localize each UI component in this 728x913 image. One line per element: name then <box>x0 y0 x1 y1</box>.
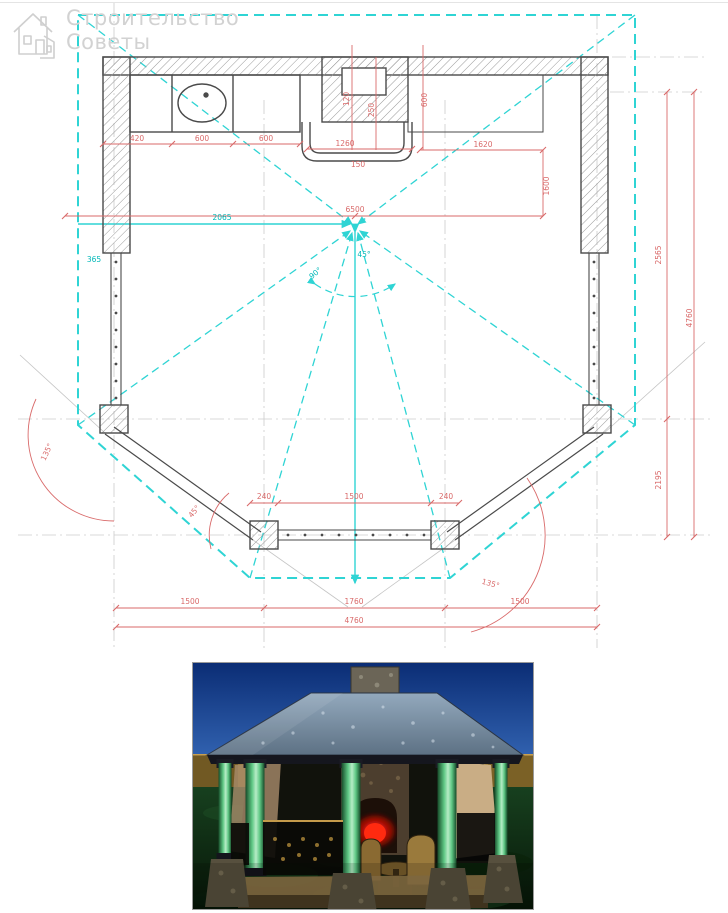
dimension-label: 600 <box>259 134 274 143</box>
gazebo-floor-plan: 4206006001260150162016001202506006500206… <box>0 0 728 656</box>
dimension-label: 600 <box>195 134 210 143</box>
dimension-label: 1260 <box>335 139 354 148</box>
baluster-dot <box>406 534 409 537</box>
baluster-dot <box>372 534 375 537</box>
baluster-dot <box>593 261 596 264</box>
dimension-label: 600 <box>420 93 429 108</box>
wall-extension-lines <box>20 342 705 607</box>
dimension-label: 1500 <box>510 597 529 606</box>
angle-arc-135-right <box>471 478 545 632</box>
baluster-dot <box>355 534 358 537</box>
baluster-dot <box>593 278 596 281</box>
dimension-label: 420 <box>130 134 145 143</box>
gazebo-render <box>193 663 533 909</box>
dimension-label: 1500 <box>180 597 199 606</box>
baluster-dot <box>338 534 341 537</box>
counter-with-sink <box>130 75 300 132</box>
dimension-label: 1620 <box>473 140 492 149</box>
dimension-label: 45° <box>357 250 371 259</box>
baluster-dot <box>115 380 118 383</box>
baluster-dot <box>287 534 290 537</box>
dimension-label: 1600 <box>542 176 551 195</box>
dimension-label: 250 <box>367 103 376 118</box>
baluster-dot <box>593 346 596 349</box>
firebox-inner <box>310 122 404 153</box>
sink <box>178 84 226 122</box>
firebox-outer <box>302 122 412 161</box>
dimension-label: 365 <box>87 255 102 264</box>
front-right-pier <box>431 521 459 549</box>
baluster-dot <box>593 380 596 383</box>
baluster-dot <box>115 363 118 366</box>
baluster-dot <box>115 261 118 264</box>
left-pier-wall <box>103 57 130 253</box>
baluster-dot <box>115 329 118 332</box>
dimension-label: 135° <box>39 442 55 462</box>
front-left-pier <box>250 521 278 549</box>
baluster-dot <box>115 346 118 349</box>
baluster-dot <box>593 397 596 400</box>
sink-faucet <box>204 93 208 97</box>
dimension-label: 2565 <box>654 245 663 264</box>
bottom-right-pier <box>583 405 611 433</box>
baluster-dot <box>321 534 324 537</box>
dimension-label: 120 <box>342 92 351 107</box>
diagonal-walls <box>105 427 603 540</box>
baluster-dot <box>115 397 118 400</box>
baluster-dot <box>115 278 118 281</box>
dimension-label: 240 <box>439 492 454 501</box>
baluster-dot <box>423 534 426 537</box>
vignette <box>193 863 533 909</box>
gazebo-render-image <box>192 662 534 910</box>
dimension-label: 1760 <box>344 597 363 606</box>
baluster-dot <box>389 534 392 537</box>
baluster-dot <box>115 295 118 298</box>
baluster-dot <box>593 312 596 315</box>
dimension-label: 4760 <box>685 308 694 327</box>
baluster-dot <box>304 534 307 537</box>
dimension-label: 2065 <box>212 213 231 222</box>
baluster-dot <box>593 295 596 298</box>
dimension-label: 90° <box>307 265 323 281</box>
dimension-label: 2195 <box>654 470 663 489</box>
dimension-label: 4760 <box>344 616 363 625</box>
dimension-label: 135° <box>481 577 501 590</box>
baluster-dot <box>115 312 118 315</box>
baluster-dot <box>593 363 596 366</box>
dimension-label: 240 <box>257 492 272 501</box>
chimney-flue <box>342 68 386 95</box>
dimension-label: 45° <box>186 503 202 519</box>
dimension-label: 6500 <box>345 205 364 214</box>
right-pier-wall <box>581 57 608 253</box>
dimension-label: 1500 <box>344 492 363 501</box>
baluster-dot <box>593 329 596 332</box>
dimension-label: 150 <box>351 160 366 169</box>
bottom-left-pier <box>100 405 128 433</box>
